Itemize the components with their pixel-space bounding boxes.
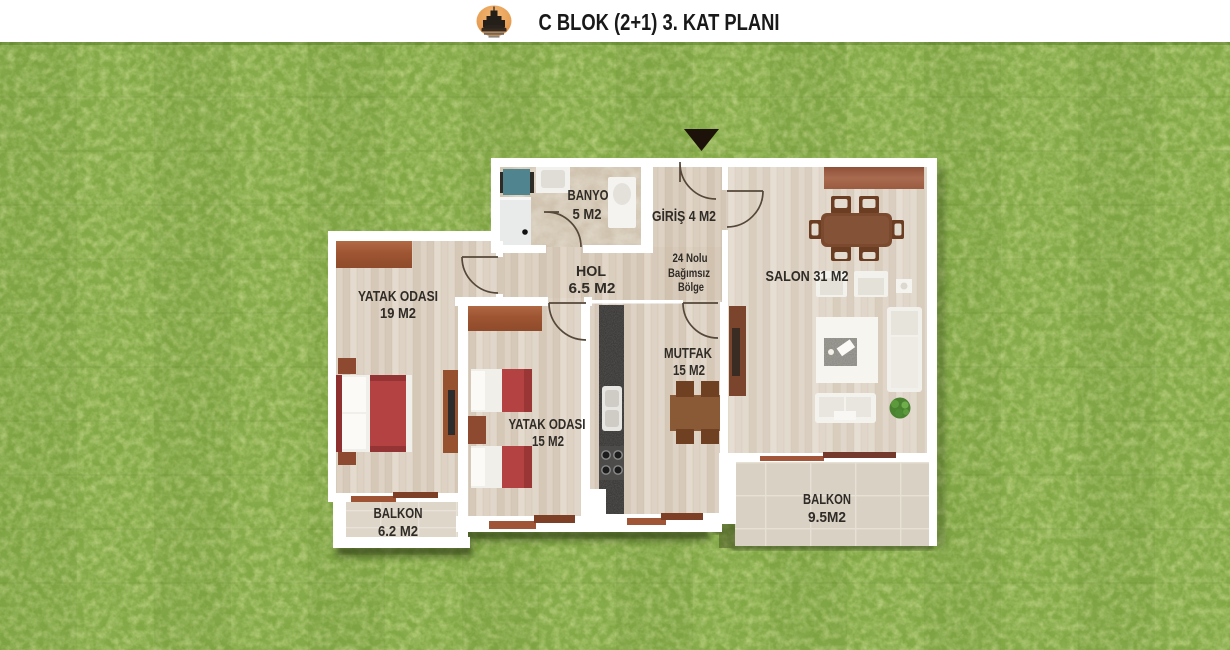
svg-text:C BLOK (2+1) 3. KAT PLANI: C BLOK (2+1) 3. KAT PLANI (539, 9, 780, 35)
svg-text:BALKON: BALKON (374, 505, 423, 522)
svg-text:24 Nolu: 24 Nolu (673, 253, 708, 265)
svg-text:YATAK ODASI: YATAK ODASI (509, 417, 586, 433)
svg-text:15 M2: 15 M2 (532, 434, 564, 450)
svg-text:YATAK ODASI: YATAK ODASI (358, 289, 438, 305)
svg-text:Bölge: Bölge (678, 282, 704, 294)
svg-text:GİRİŞ 4 M2: GİRİŞ 4 M2 (652, 208, 716, 225)
svg-text:Bağımsız: Bağımsız (668, 268, 710, 280)
svg-text:HOL: HOL (576, 264, 606, 280)
svg-text:9.5M2: 9.5M2 (808, 509, 846, 526)
svg-text:6.2 M2: 6.2 M2 (378, 523, 418, 540)
svg-text:BANYO: BANYO (568, 187, 609, 204)
svg-text:MUTFAK: MUTFAK (664, 346, 712, 362)
svg-text:15 M2: 15 M2 (673, 363, 705, 379)
svg-text:6.5 M2: 6.5 M2 (569, 281, 616, 297)
svg-text:19 M2: 19 M2 (380, 306, 416, 322)
svg-text:BALKON: BALKON (803, 491, 851, 508)
svg-text:SALON 31 M2: SALON 31 M2 (766, 268, 849, 285)
svg-text:5 M2: 5 M2 (573, 206, 602, 223)
